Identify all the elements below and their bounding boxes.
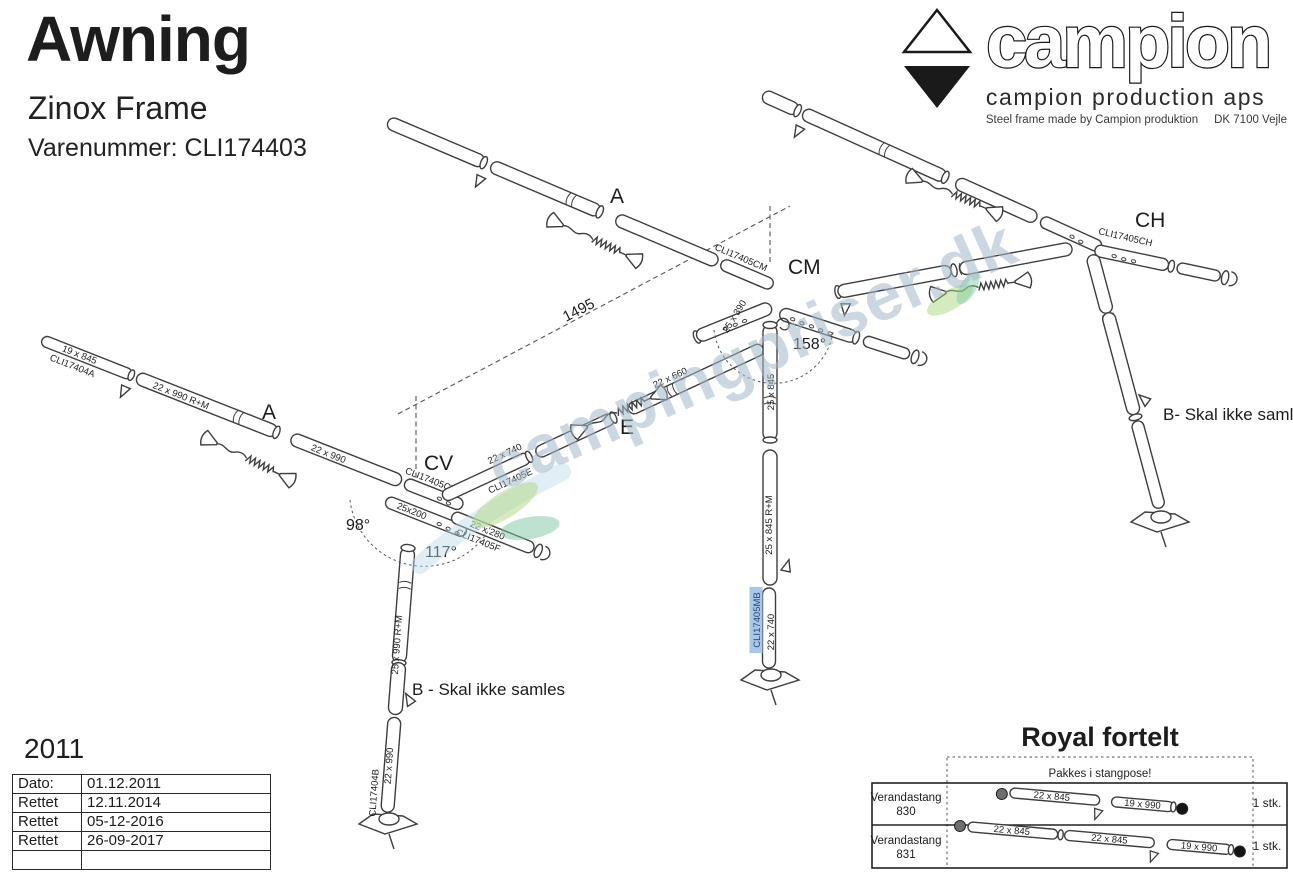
- roof-bar-a-top: CLI17405CM: [378, 105, 780, 308]
- marker-cv: CV: [424, 452, 453, 475]
- royal-row2-seg3: 19 x 990: [1180, 840, 1217, 854]
- ch-right-arm: [1094, 243, 1239, 287]
- note-b-right: B- Skal ikke samles: [1163, 405, 1293, 424]
- logo-text: campion: [986, 4, 1269, 83]
- watermark-text: campingpriser.dk: [476, 205, 1028, 506]
- revision-value: 12.11.2014: [82, 794, 271, 813]
- revision-label: Rettet: [13, 794, 82, 813]
- page: 1495 CLI17405CM A 19 x 845 CLI17404A 22 …: [0, 0, 1293, 879]
- logo-wordmark: campion: [986, 4, 1282, 84]
- royal-row2-name: Verandastang: [871, 835, 942, 847]
- royal-row2-qty: 1 stk.: [1253, 839, 1282, 853]
- royal-row1-seg2: 19 x 990: [1124, 798, 1161, 812]
- brand-company: campion production aps: [986, 84, 1265, 111]
- part-size-22x740-leg: 22 x 740: [766, 614, 777, 650]
- royal-row2-seg1: 22 x 845: [993, 824, 1030, 838]
- revision-value-empty: [82, 851, 271, 870]
- part-code-cli17405mb: CLI17405MB: [752, 592, 763, 647]
- part-size-25x845rm: 25 x 845 R+M: [764, 495, 775, 554]
- page-title: Awning: [26, 2, 250, 76]
- dimension-1495: 1495: [560, 295, 597, 325]
- watermark: campingpriser.dk: [420, 205, 1028, 565]
- marker-a-top: A: [610, 185, 624, 208]
- frame-diagram: 1495 CLI17405CM A 19 x 845 CLI17404A 22 …: [0, 0, 1293, 879]
- revision-year: 2011: [24, 733, 84, 765]
- royal-fortelt-panel: Royal fortelt Pakkes i stangpose! Verand…: [871, 722, 1287, 870]
- royal-row2-seg2: 22 x 845: [1091, 833, 1128, 847]
- brand-logo: campion campion production aps Steel fra…: [898, 4, 1287, 126]
- royal-row1-seg1: 22 x 845: [1033, 790, 1070, 804]
- royal-title: Royal fortelt: [1021, 722, 1179, 752]
- right-leg: [1086, 250, 1180, 510]
- royal-row1-number: 830: [896, 806, 915, 818]
- verandastang-830-tubes: 22 x 845 19 x 990: [995, 787, 1188, 828]
- revision-label: Rettet: [13, 832, 82, 851]
- revision-label: Rettet: [13, 813, 82, 832]
- revision-table: Dato: 01.12.2011 Rettet 12.11.2014 Rette…: [12, 774, 271, 870]
- page-subtitle: Zinox Frame: [28, 90, 208, 127]
- table-row: Dato: 01.12.2011: [13, 775, 271, 794]
- angle-98: 98°: [346, 517, 370, 534]
- revision-value: 05-12-2016: [82, 813, 271, 832]
- table-row: Rettet 05-12-2016: [13, 813, 271, 832]
- brand-tagline: Steel frame made by Campion produktion: [986, 114, 1198, 126]
- table-row: Rettet 26-09-2017: [13, 832, 271, 851]
- royal-note: Pakkes i stangpose!: [1049, 768, 1152, 780]
- part-code-cli17404b: CLI17404B: [367, 769, 381, 817]
- marker-ch: CH: [1135, 209, 1165, 232]
- note-b-left: B - Skal ikke samles: [412, 680, 565, 699]
- table-row: Rettet 12.11.2014: [13, 794, 271, 813]
- revision-label: Dato:: [13, 775, 82, 794]
- marker-cm: CM: [788, 256, 821, 279]
- revision-value: 26-09-2017: [82, 832, 271, 851]
- verandastang-831-tubes: 22 x 845 22 x 845 19 x 990: [953, 820, 1246, 870]
- revision-value: 01.12.2011: [82, 775, 271, 794]
- revision-label-empty: [13, 851, 82, 870]
- part-number: Varenummer: CLI174403: [28, 134, 307, 163]
- royal-row1-qty: 1 stk.: [1253, 796, 1282, 810]
- royal-row1-name: Verandastang: [871, 792, 942, 804]
- part-code-cli17405mb-highlight: CLI17405MB: [750, 587, 764, 653]
- roof-bar-a-left: 19 x 845 CLI17404A 22 x 990 R+M 22 x 990…: [33, 324, 469, 528]
- royal-row2-number: 831: [896, 849, 915, 861]
- brand-location: DK 7100 Vejle: [1214, 114, 1287, 126]
- table-row-empty: [13, 851, 271, 870]
- marker-a-left: A: [262, 401, 276, 424]
- logo-triangles-icon: [898, 6, 976, 110]
